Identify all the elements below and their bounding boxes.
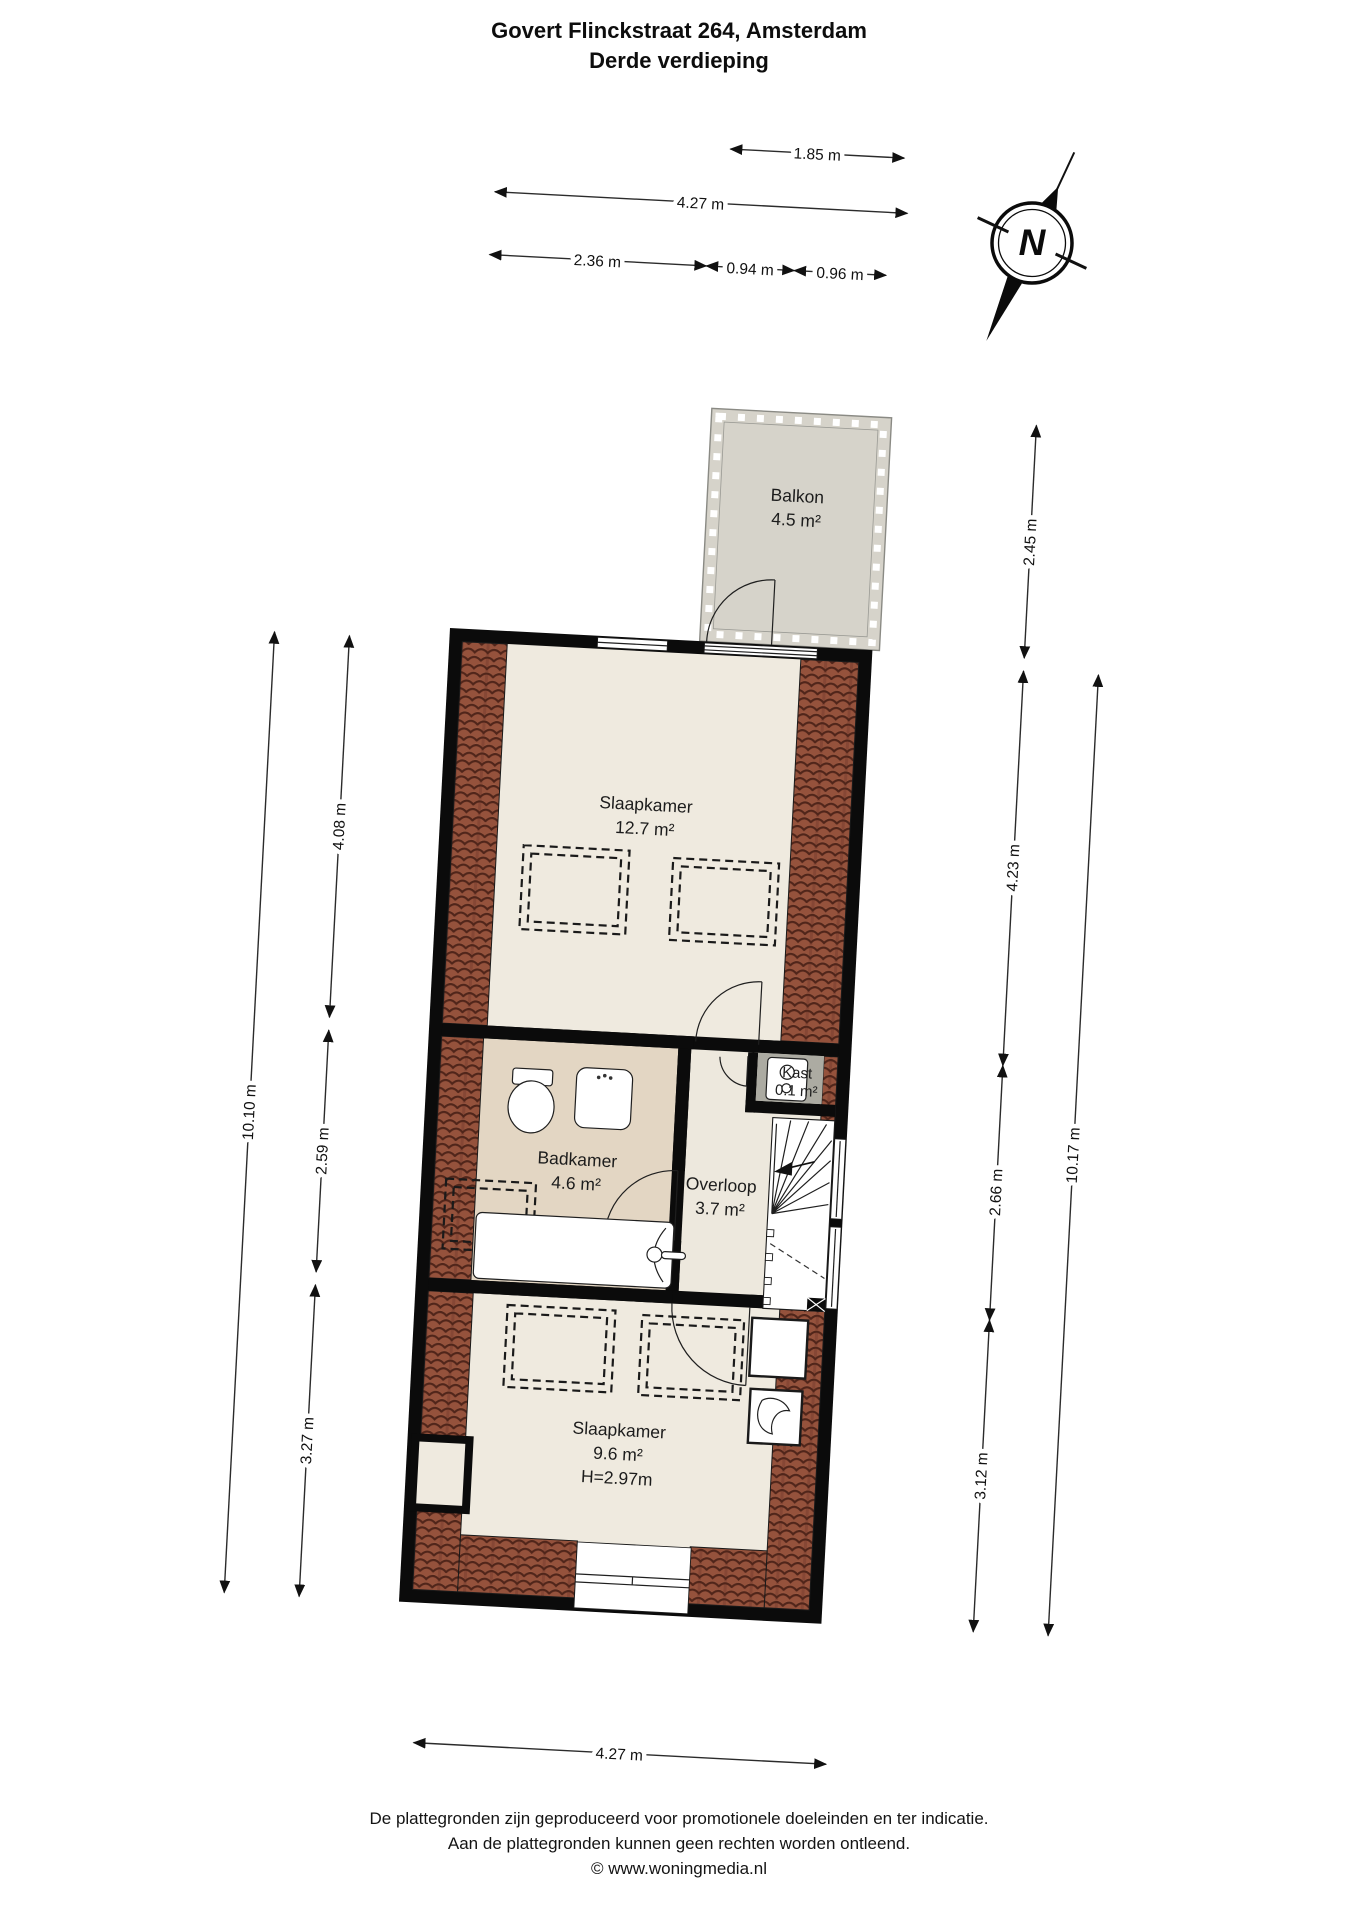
- dormer-niche: [412, 1437, 470, 1510]
- dim-right-s3: 3.12 m: [972, 1452, 991, 1500]
- dim-top-3a: 2.36 m: [573, 252, 621, 271]
- balcony-area: 4.5 m²: [771, 509, 822, 532]
- dim-top-3b: 0.94 m: [726, 260, 774, 279]
- bedroom-bottom-height: H=2.97m: [581, 1466, 653, 1490]
- dim-left-s1: 4.08 m: [330, 802, 349, 850]
- wardrobe-1: [749, 1318, 808, 1379]
- dim-top-1: 1.85 m: [793, 145, 841, 164]
- dim-right-total: 10.17 m: [1064, 1127, 1084, 1184]
- floorplan-page: { "title": { "line1": "Govert Flinckstra…: [0, 0, 1358, 1920]
- dim-left-s2: 2.59 m: [313, 1127, 332, 1175]
- bedroom-top-area: 12.7 m²: [615, 817, 675, 840]
- stairwell-marker: [807, 1298, 826, 1312]
- disclaimer-line-1: De plattegronden zijn geproduceerd voor …: [0, 1806, 1358, 1831]
- landing-area: 3.7 m²: [695, 1198, 746, 1221]
- plan-group: Balkon 4.5 m²: [208, 119, 1134, 1786]
- closet-area: 0.1 m²: [775, 1082, 818, 1101]
- dim-right-s1: 4.23 m: [1004, 844, 1023, 892]
- balcony-label: Balkon: [770, 485, 824, 508]
- dim-left-total: 10.10 m: [240, 1084, 260, 1141]
- bedroom-bottom-area: 9.6 m²: [593, 1443, 644, 1466]
- disclaimer-line-2: Aan de plattegronden kunnen geen rechten…: [0, 1831, 1358, 1856]
- landing-label: Overloop: [685, 1173, 757, 1197]
- balcony: Balkon 4.5 m²: [700, 408, 892, 650]
- dim-bottom: 4.27 m: [595, 1745, 643, 1764]
- dim-right-balkon: 2.45 m: [1021, 518, 1040, 566]
- dim-top-2: 4.27 m: [676, 194, 724, 213]
- compass-north-label: N: [1019, 222, 1047, 263]
- bathroom-label: Badkamer: [537, 1147, 618, 1171]
- floor-plan-svg: Balkon 4.5 m²: [0, 0, 1358, 1920]
- shower-head: [647, 1247, 663, 1263]
- compass: N: [975, 147, 1086, 346]
- bathtub: [473, 1212, 674, 1288]
- closet-label: Kast: [782, 1064, 814, 1083]
- copyright: © www.woningmedia.nl: [0, 1856, 1358, 1881]
- disclaimer: De plattegronden zijn geproduceerd voor …: [0, 1806, 1358, 1881]
- shower-handle: [661, 1251, 685, 1259]
- dim-top-3c: 0.96 m: [816, 265, 864, 284]
- dim-right-s2: 2.66 m: [987, 1168, 1006, 1216]
- staircase: [763, 1118, 835, 1312]
- dim-left-s3: 3.27 m: [298, 1417, 317, 1465]
- bathroom-area: 4.6 m²: [551, 1172, 602, 1195]
